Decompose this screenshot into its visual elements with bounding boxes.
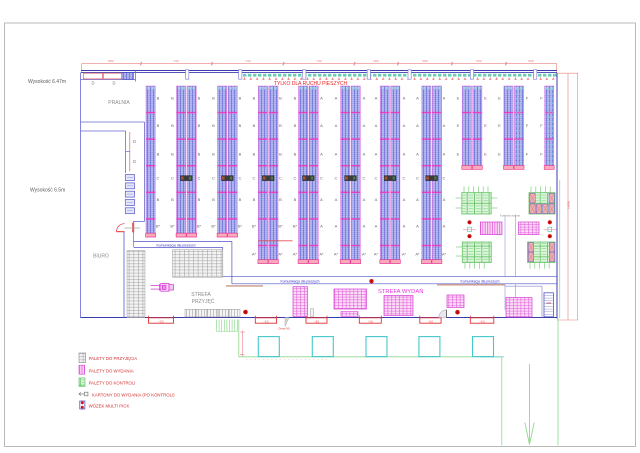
svg-text:B: B <box>294 151 297 156</box>
svg-text:A: A <box>363 123 366 128</box>
svg-text:Kontrola wydani: Kontrola wydani <box>500 214 520 218</box>
svg-text:B: B <box>239 95 242 100</box>
svg-text:B: B <box>239 123 242 128</box>
svg-text:A*: A* <box>319 251 324 256</box>
svg-text:~3,0: ~3,0 <box>428 319 434 323</box>
svg-text:C: C <box>279 175 282 180</box>
svg-text:A*: A* <box>293 251 298 256</box>
svg-text:C: C <box>335 175 338 180</box>
svg-text:B: B <box>253 197 256 202</box>
svg-text:B: B <box>198 197 201 202</box>
svg-text:~3,0: ~3,0 <box>263 319 269 323</box>
svg-text:B: B <box>294 95 297 100</box>
svg-text:A: A <box>335 95 338 100</box>
svg-text:B: B <box>279 95 282 100</box>
svg-text:C: C <box>320 175 323 180</box>
svg-text:~3,0: ~3,0 <box>368 319 374 323</box>
svg-text:B*: B* <box>170 223 175 228</box>
svg-text:C: C <box>239 175 242 180</box>
svg-text:C: C <box>363 175 366 180</box>
svg-text:B: B <box>157 95 160 100</box>
svg-text:A: A <box>416 123 419 128</box>
svg-text:A: A <box>320 151 323 156</box>
svg-text:B*: B* <box>197 223 202 228</box>
svg-text:B: B <box>239 197 242 202</box>
svg-text:A: A <box>403 95 406 100</box>
svg-text:C: C <box>375 175 378 180</box>
svg-text:A*: A* <box>252 251 257 256</box>
svg-text:WÓZEK MULTI PICK: WÓZEK MULTI PICK <box>89 403 130 408</box>
svg-text:D: D <box>133 139 136 144</box>
svg-text:E: E <box>484 95 487 100</box>
svg-text:Wysokość 6.5m: Wysokość 6.5m <box>30 188 65 194</box>
svg-text:A: A <box>443 95 446 100</box>
svg-text:14900: 14900 <box>567 200 571 209</box>
svg-text:E: E <box>457 151 460 156</box>
svg-text:C: C <box>416 175 419 180</box>
svg-text:A: A <box>335 151 338 156</box>
svg-text:C: C <box>253 175 256 180</box>
svg-text:E: E <box>498 151 501 156</box>
svg-text:A: A <box>403 223 406 228</box>
svg-text:PRALNIA: PRALNIA <box>108 100 130 106</box>
svg-text:D: D <box>133 159 136 164</box>
svg-text:B: B <box>157 151 160 156</box>
svg-text:D: D <box>91 81 94 86</box>
svg-text:B: B <box>294 123 297 128</box>
svg-text:7100: 7100 <box>316 60 322 63</box>
svg-text:PRZYJĘĆ: PRZYJĘĆ <box>192 298 215 305</box>
svg-text:Wysokość 6.47m: Wysokość 6.47m <box>28 79 66 85</box>
svg-text:A: A <box>403 197 406 202</box>
svg-text:B: B <box>157 123 160 128</box>
svg-text:B: B <box>198 123 201 128</box>
svg-text:7100: 7100 <box>245 60 251 63</box>
svg-text:A: A <box>363 197 366 202</box>
svg-text:A: A <box>335 123 338 128</box>
svg-text:E: E <box>457 95 460 100</box>
svg-text:A: A <box>320 95 323 100</box>
svg-text:A: A <box>375 197 378 202</box>
svg-text:Komunikacja dla pieszych: Komunikacja dla pieszych <box>156 244 195 248</box>
svg-text:Komunikacja dla pieszych: Komunikacja dla pieszych <box>460 280 499 284</box>
svg-text:A: A <box>320 223 323 228</box>
svg-text:A: A <box>375 151 378 156</box>
svg-text:C: C <box>157 175 160 180</box>
svg-text:B: B <box>171 151 174 156</box>
svg-text:Drzwi 90: Drzwi 90 <box>279 327 290 331</box>
svg-text:B: B <box>212 197 215 202</box>
svg-text:A: A <box>443 223 446 228</box>
svg-text:E: E <box>457 123 460 128</box>
svg-text:A: A <box>363 95 366 100</box>
svg-text:C: C <box>403 175 406 180</box>
svg-text:A: A <box>335 197 338 202</box>
svg-text:C: C <box>198 175 201 180</box>
svg-text:B*: B* <box>238 223 243 228</box>
svg-text:B: B <box>279 197 282 202</box>
svg-text:B: B <box>253 151 256 156</box>
svg-text:A: A <box>403 151 406 156</box>
svg-text:B*: B* <box>278 223 283 228</box>
svg-text:C: C <box>212 175 215 180</box>
svg-text:B*: B* <box>252 223 257 228</box>
svg-text:B: B <box>253 95 256 100</box>
svg-text:C: C <box>171 175 174 180</box>
svg-text:A*: A* <box>374 251 379 256</box>
svg-text:A: A <box>416 223 419 228</box>
svg-text:E: E <box>498 123 501 128</box>
svg-text:5000: 5000 <box>528 60 534 63</box>
svg-text:B: B <box>198 95 201 100</box>
svg-text:B: B <box>294 197 297 202</box>
svg-text:A: A <box>363 223 366 228</box>
svg-text:KARTONY DO WYDANIA (PO KONTROL: KARTONY DO WYDANIA (PO KONTROLI) <box>92 393 175 398</box>
svg-text:~3,0: ~3,0 <box>314 319 320 323</box>
svg-text:5900: 5900 <box>108 60 114 63</box>
svg-text:B*: B* <box>293 223 298 228</box>
svg-text:7100: 7100 <box>173 60 179 63</box>
svg-text:~3,0: ~3,0 <box>158 319 164 323</box>
svg-text:B: B <box>212 151 215 156</box>
svg-text:4300: 4300 <box>373 60 379 63</box>
svg-text:A: A <box>403 123 406 128</box>
svg-text:D: D <box>112 81 115 86</box>
svg-text:B*: B* <box>156 223 161 228</box>
svg-text:B: B <box>157 197 160 202</box>
svg-text:B: B <box>279 151 282 156</box>
svg-text:A*: A* <box>334 251 339 256</box>
svg-text:A: A <box>375 95 378 100</box>
svg-text:B*: B* <box>211 223 216 228</box>
svg-text:B: B <box>198 151 201 156</box>
svg-text:Komunikacja dla pieszych: Komunikacja dla pieszych <box>280 280 319 284</box>
svg-text:A: A <box>375 223 378 228</box>
svg-text:PALETY DO PRZYJĘCIA: PALETY DO PRZYJĘCIA <box>89 356 138 361</box>
svg-text:B: B <box>279 123 282 128</box>
svg-text:A: A <box>443 151 446 156</box>
svg-text:A: A <box>416 151 419 156</box>
svg-text:A*: A* <box>415 251 420 256</box>
svg-text:E: E <box>484 151 487 156</box>
svg-text:B: B <box>171 95 174 100</box>
svg-text:A: A <box>320 123 323 128</box>
svg-text:C: C <box>294 175 297 180</box>
svg-text:~3,0: ~3,0 <box>480 319 486 323</box>
svg-text:PALETY DO KONTROLI: PALETY DO KONTROLI <box>89 381 136 386</box>
svg-text:A: A <box>320 197 323 202</box>
svg-text:A: A <box>416 95 419 100</box>
svg-text:A: A <box>443 197 446 202</box>
svg-text:E: E <box>484 123 487 128</box>
svg-text:A*: A* <box>362 251 367 256</box>
svg-text:BIURO: BIURO <box>93 254 109 260</box>
svg-text:E: E <box>498 95 501 100</box>
svg-text:B: B <box>171 197 174 202</box>
svg-text:A*: A* <box>442 251 447 256</box>
svg-text:B: B <box>253 123 256 128</box>
svg-text:PALETY DO WYDANIA: PALETY DO WYDANIA <box>89 368 134 373</box>
svg-text:B: B <box>239 151 242 156</box>
svg-text:B: B <box>212 123 215 128</box>
svg-text:A: A <box>443 123 446 128</box>
svg-text:5400: 5400 <box>476 60 482 63</box>
svg-text:B: B <box>171 123 174 128</box>
svg-text:5400: 5400 <box>422 60 428 63</box>
svg-text:B: B <box>212 95 215 100</box>
svg-text:A: A <box>363 151 366 156</box>
svg-text:STREFA: STREFA <box>191 292 211 298</box>
svg-text:A: A <box>375 123 378 128</box>
svg-text:C: C <box>443 175 446 180</box>
svg-text:A*: A* <box>278 251 283 256</box>
svg-text:A: A <box>416 197 419 202</box>
svg-text:A*: A* <box>402 251 407 256</box>
svg-text:A: A <box>335 223 338 228</box>
svg-text:STREFA WYDAŃ: STREFA WYDAŃ <box>378 288 423 295</box>
